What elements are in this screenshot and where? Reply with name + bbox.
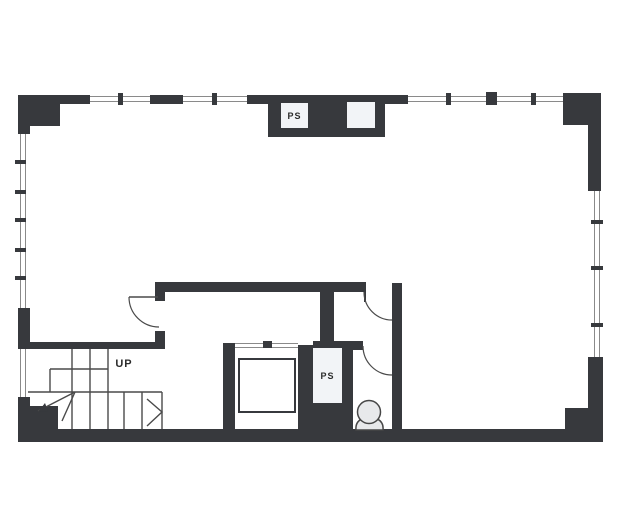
plan-linework xyxy=(0,0,632,528)
toilet-fixture xyxy=(356,401,383,431)
hall-door-arc xyxy=(129,297,159,327)
up-label: UP xyxy=(108,358,140,370)
wc-door-arc xyxy=(363,346,392,375)
floor-plan: PS PS UP xyxy=(0,0,632,528)
toilet-tank xyxy=(358,401,381,424)
vestibule-door-arc xyxy=(364,292,392,320)
stair-direction-chevron xyxy=(147,399,162,426)
door-arcs xyxy=(129,292,392,375)
